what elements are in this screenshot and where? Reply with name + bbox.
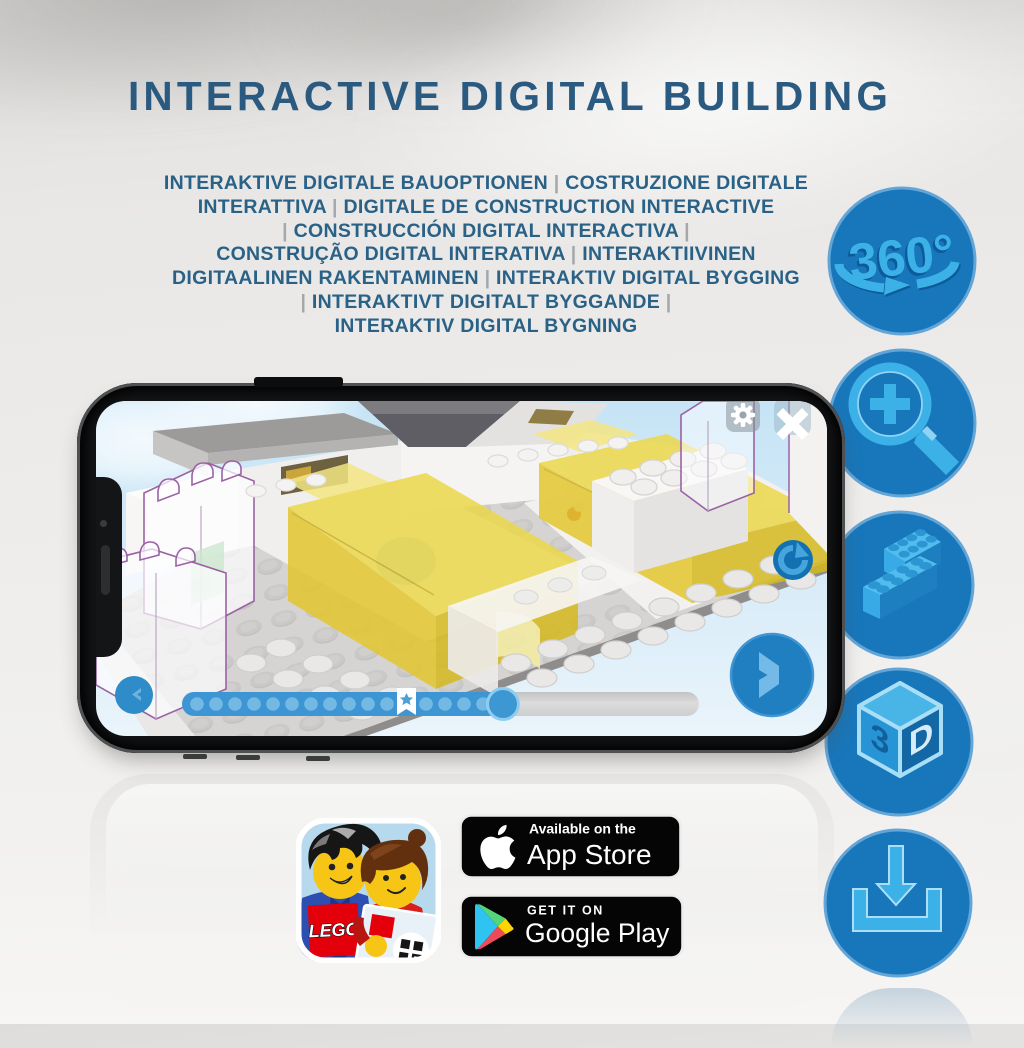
svg-text:App Store: App Store: [527, 839, 652, 870]
svg-text:GET IT ON: GET IT ON: [527, 904, 604, 918]
svg-text:LEGO: LEGO: [308, 919, 360, 942]
svg-text:Available on the: Available on the: [529, 821, 636, 837]
svg-text:Google Play: Google Play: [525, 918, 670, 948]
